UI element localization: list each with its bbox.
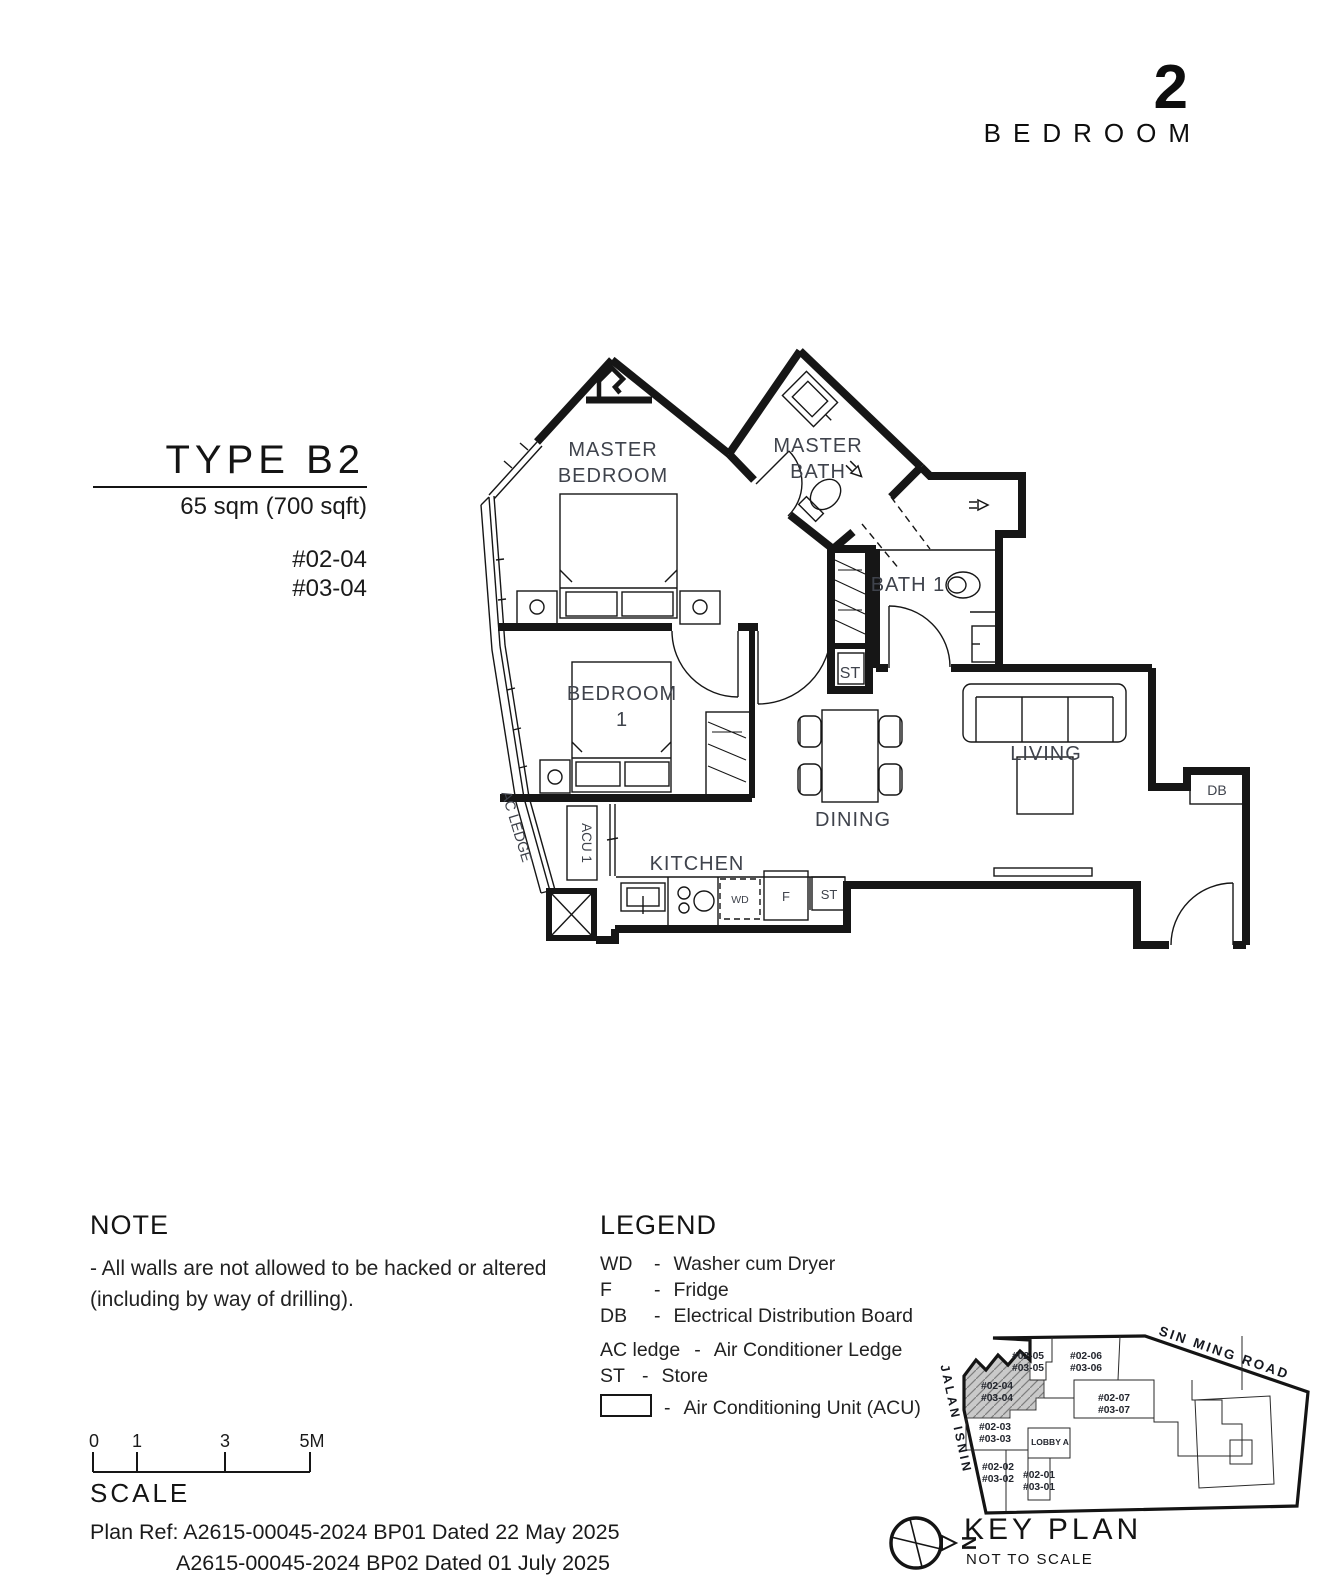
- floor-plan-drawing: MASTER BEDROOM MASTER BATH BEDROOM 1 BAT…: [470, 330, 1250, 970]
- legend-row-wd: WD - Washer cum Dryer: [600, 1253, 1030, 1276]
- label-store-hall: ST: [840, 665, 861, 682]
- key-plan-unit: #03-02: [982, 1474, 1014, 1485]
- label-kitchen: KITCHEN: [650, 853, 745, 875]
- unit-area: 65 sqm (700 sqft): [90, 493, 367, 521]
- legend-desc: Store: [662, 1365, 709, 1388]
- key-plan-subheading: NOT TO SCALE: [966, 1551, 1093, 1568]
- unit-number: #02-04: [90, 545, 367, 574]
- label-bedroom-1: 1: [616, 709, 628, 731]
- label-master-bedroom: BEDROOM: [558, 465, 668, 487]
- unit-numbers: #02-04 #03-04: [90, 545, 367, 603]
- key-plan-unit: #02-02: [982, 1462, 1014, 1473]
- label-dining: DINING: [815, 809, 891, 831]
- unit-number: #03-04: [90, 574, 367, 603]
- label-wd: WD: [731, 894, 749, 906]
- legend-separator: -: [654, 1279, 661, 1302]
- key-plan-unit: #03-03: [979, 1434, 1011, 1445]
- key-plan-unit: #03-05: [1012, 1363, 1044, 1374]
- scale-bar: 0 1 3 5M: [88, 1432, 338, 1478]
- legend-separator: -: [694, 1339, 701, 1362]
- key-plan-unit: #02-06: [1070, 1351, 1102, 1362]
- note-line: (including by way of drilling).: [90, 1284, 550, 1315]
- scale-tick: 5M: [299, 1432, 324, 1451]
- title-underline: [93, 486, 367, 488]
- note-line: - All walls are not allowed to be hacked…: [90, 1253, 550, 1284]
- legend-key: F: [600, 1279, 654, 1302]
- acu-symbol: [600, 1394, 652, 1417]
- plan-ref-line: Plan Ref: A2615-00045-2024 BP01 Dated 22…: [90, 1520, 620, 1545]
- legend-key: ST: [600, 1365, 642, 1388]
- key-plan-unit-highlighted: #02-04: [981, 1381, 1013, 1392]
- key-plan-heading: KEY PLAN: [964, 1513, 1142, 1547]
- plan-ref-line: A2615-00045-2024 BP02 Dated 01 July 2025: [176, 1551, 610, 1576]
- legend-heading: LEGEND: [600, 1210, 1030, 1241]
- legend-desc: Electrical Distribution Board: [674, 1305, 914, 1328]
- label-bedroom-1: BEDROOM: [567, 683, 677, 705]
- legend-separator: -: [654, 1253, 661, 1276]
- legend-separator: -: [654, 1305, 661, 1328]
- label-master-bedroom: MASTER: [568, 439, 657, 461]
- key-plan-unit: #02-07: [1098, 1393, 1130, 1404]
- legend-key: AC ledge: [600, 1339, 680, 1362]
- scale-tick: 0: [89, 1432, 99, 1451]
- legend-desc: Air Conditioner Ledge: [714, 1339, 903, 1362]
- floorplan-page: 2 BEDROOM TYPE B2 65 sqm (700 sqft) #02-…: [0, 0, 1329, 1594]
- key-plan-unit-highlighted: #03-04: [981, 1393, 1013, 1404]
- key-plan-drawing: #02-05 #03-05 #02-06 #03-06 #02-04 #03-0…: [940, 1280, 1329, 1525]
- legend-separator: -: [642, 1365, 649, 1388]
- key-plan-unit: #03-06: [1070, 1363, 1102, 1374]
- unit-type-title: TYPE B2: [93, 438, 365, 483]
- legend-desc: Washer cum Dryer: [674, 1253, 836, 1276]
- label-db: DB: [1207, 782, 1226, 798]
- legend-desc: Fridge: [674, 1279, 729, 1302]
- label-living: LIVING: [1010, 743, 1082, 765]
- label-master-bath: MASTER: [773, 435, 862, 457]
- label-acu-1: ACU 1: [579, 823, 594, 863]
- label-bath-1: BATH 1: [871, 574, 946, 596]
- key-plan-unit: #02-05: [1012, 1351, 1044, 1362]
- key-plan-lobby: LOBBY A: [1031, 1437, 1069, 1447]
- key-plan-unit: #02-03: [979, 1422, 1011, 1433]
- legend-desc: Air Conditioning Unit (ACU): [684, 1397, 921, 1420]
- scale-heading: SCALE: [90, 1478, 190, 1509]
- label-fridge: F: [782, 889, 790, 904]
- key-plan-unit: #03-07: [1098, 1405, 1130, 1416]
- page-title-number: 2: [1154, 52, 1190, 123]
- key-plan-road-sin-ming: SIN MING ROAD: [1157, 1323, 1292, 1382]
- page-title-word: BEDROOM: [984, 118, 1202, 149]
- note-heading: NOTE: [90, 1210, 550, 1241]
- legend-key: WD: [600, 1253, 654, 1276]
- scale-tick: 3: [220, 1432, 230, 1451]
- scale-tick: 1: [132, 1432, 142, 1451]
- legend-separator: -: [664, 1397, 671, 1420]
- key-plan-unit: #02-01: [1023, 1470, 1055, 1481]
- note-block: NOTE - All walls are not allowed to be h…: [90, 1210, 550, 1315]
- legend-key: DB: [600, 1305, 654, 1328]
- key-plan-unit: #03-01: [1023, 1482, 1055, 1493]
- label-store-kitchen: ST: [821, 887, 838, 902]
- label-master-bath: BATH: [790, 461, 846, 483]
